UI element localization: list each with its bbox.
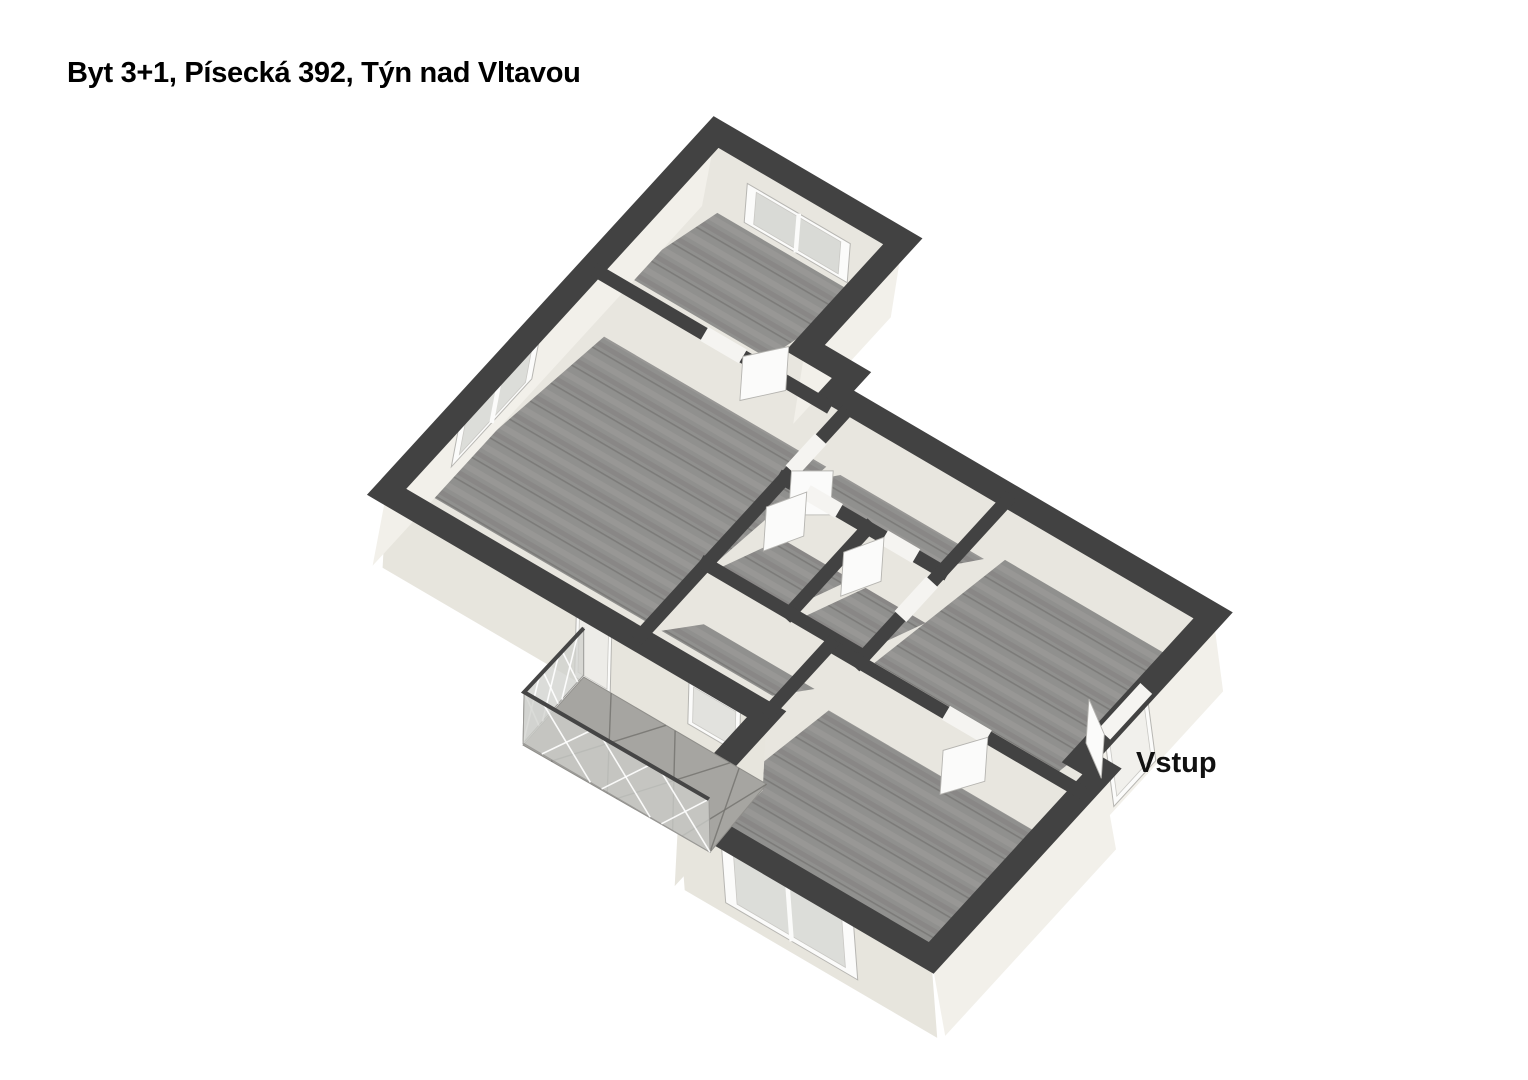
page: Byt 3+1, Písecká 392, Týn nad Vltavou Vs… [0,0,1528,1080]
floor-plan-rendering [0,0,1528,1080]
page-title: Byt 3+1, Písecká 392, Týn nad Vltavou [67,57,581,90]
entrance-label: Vstup [1136,747,1217,780]
window-bedroom-top-mullion [796,214,799,253]
